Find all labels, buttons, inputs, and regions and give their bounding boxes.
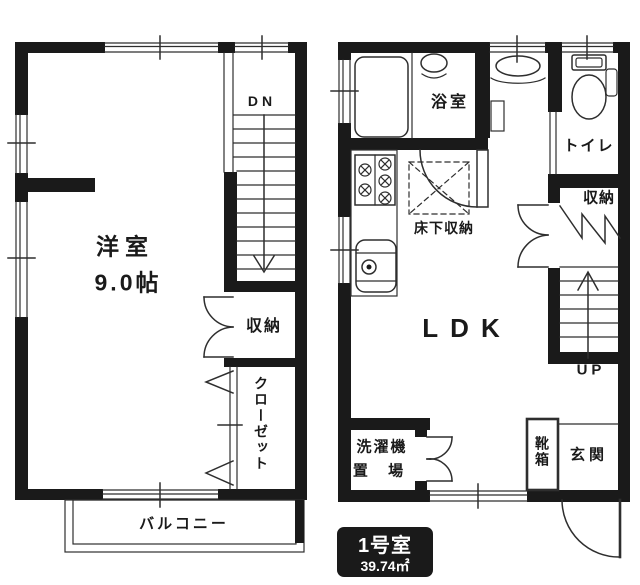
stairs-up-label: UP: [577, 363, 606, 378]
kitchen-counter: [351, 150, 397, 296]
bathroom-right-wall: [475, 53, 490, 138]
entrance-label: 玄関: [570, 448, 608, 463]
toilet-fixtures: [572, 55, 617, 119]
closet-label: クローゼット: [254, 376, 268, 472]
bifold-door-mark: [560, 206, 620, 243]
bedroom-size-label: 9.0帖: [95, 272, 162, 295]
balcony-label: バルコニー: [139, 517, 229, 532]
bedroom-label: 洋室: [96, 236, 154, 259]
shoe-box-label: 靴箱: [535, 436, 549, 468]
folding-door-mark: [206, 461, 233, 485]
bathtub: [355, 57, 408, 137]
left-storage-double-door: [204, 297, 233, 357]
toilet-tank: [572, 55, 606, 70]
ldk-label: LDK: [422, 315, 511, 341]
stairs-down-arrow: [254, 115, 274, 272]
right-storage-doors: [518, 205, 620, 267]
folding-door-mark: [206, 371, 233, 393]
bath-basin: [421, 54, 447, 72]
storage-left-label: 収納: [246, 319, 282, 335]
entry-door-arc: [562, 500, 620, 557]
laundry-label-line2: 置 場: [353, 464, 411, 479]
toilet-label: トイレ: [563, 139, 614, 154]
bathroom-door-leaf: [477, 150, 488, 207]
floor-plan: 洋室 9.0帖 DN 収納 クローゼット バルコニー 浴室 トイレ 収納 床下収…: [0, 0, 640, 585]
laundry-doors: [427, 437, 452, 481]
toilet-bowl: [572, 75, 606, 119]
unit-area-label: 39.74㎡: [360, 559, 409, 573]
underfloor-storage-label: 床下収納: [414, 221, 474, 235]
right-unit-walls: [338, 42, 630, 502]
bath-label: 浴室: [431, 95, 469, 111]
washbasin: [496, 56, 540, 76]
bathroom-bottom-wall: [350, 138, 488, 150]
unit-name-label: 1号室: [358, 536, 412, 556]
stairs-up-arrow: [578, 272, 598, 358]
stairs-down-label: DN: [248, 94, 276, 108]
storage-right-label: 収納: [583, 191, 615, 206]
room-divider-stub-wall: [15, 178, 95, 192]
underfloor-storage-hatch: [409, 162, 469, 214]
toilet-wall: [548, 42, 562, 112]
closet-partition-and-folding-door: [206, 367, 242, 489]
right-stairs: [560, 267, 618, 358]
laundry-label-line1: 洗濯機: [356, 440, 407, 455]
washroom-fixtures: [491, 56, 556, 174]
kitchen-fixtures: [351, 150, 397, 296]
